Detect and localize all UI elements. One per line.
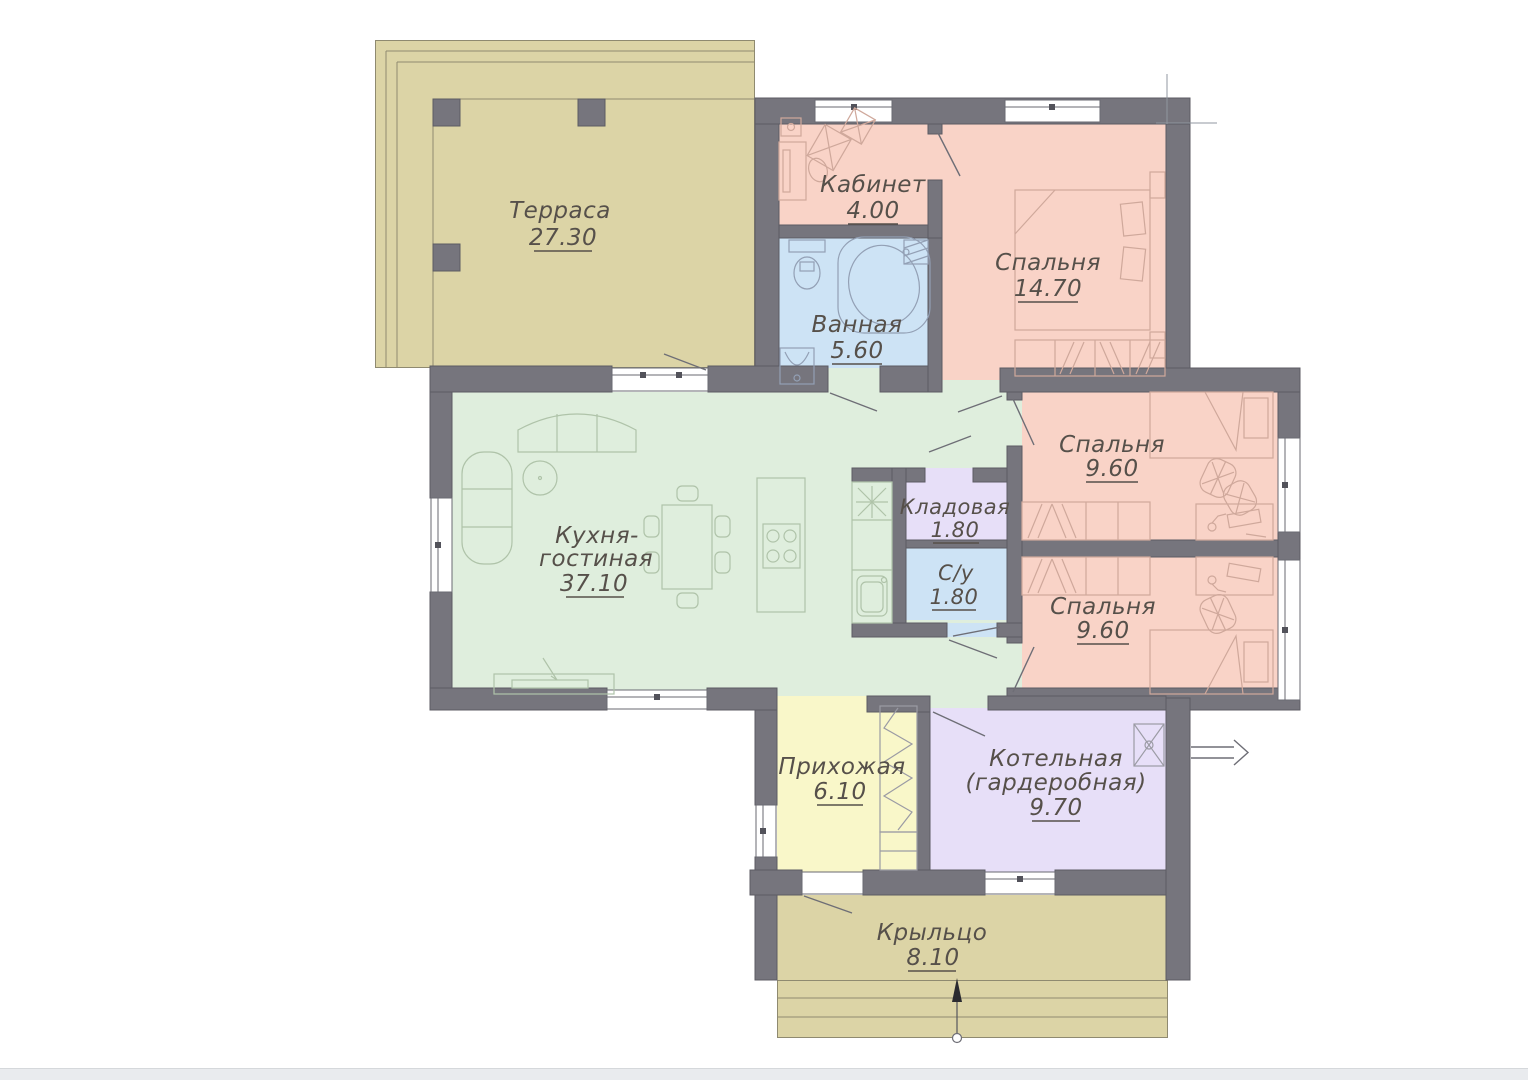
bathroom-door-opening (828, 368, 880, 392)
window-kitchen-bottom (607, 690, 707, 709)
wc-door-opening (947, 623, 997, 637)
bedroom-bottom-door-opening (1007, 643, 1022, 694)
office-label: Кабинет (820, 172, 926, 198)
window-kitchen-left (431, 498, 452, 592)
terrace-column (433, 244, 460, 271)
vent-arrow (1191, 740, 1248, 765)
hallway-label: Прихожая (778, 754, 905, 780)
window-office-top (815, 100, 892, 122)
bedroom-top-area: 9.60 (1085, 456, 1138, 482)
window-bedroom-top-right (1278, 438, 1300, 532)
porch-steps (777, 980, 1168, 1038)
bedroom-bottom-label: Спальня (1050, 594, 1156, 620)
office-area: 4.00 (846, 198, 899, 224)
porch-area: 8.10 (906, 945, 959, 971)
bathroom-area: 5.60 (830, 338, 883, 364)
kitchen-living-label-2: гостиная (539, 546, 653, 572)
hallway-area: 6.10 (813, 779, 866, 805)
terrace-door (612, 368, 708, 391)
bathroom-label: Ванная (812, 312, 903, 338)
terrace-area: 27.30 (529, 225, 597, 251)
wc-label: С/у (938, 561, 974, 585)
page-bottom-edge (0, 1068, 1528, 1080)
hood-symbol (856, 486, 888, 518)
bedroom-bottom-area: 9.60 (1076, 618, 1129, 644)
wc-area: 1.80 (930, 585, 979, 609)
pantry-area: 1.80 (931, 518, 980, 542)
window-boiler-bottom (985, 872, 1055, 894)
terrace-column (433, 99, 460, 126)
window-hallway-left (756, 805, 776, 857)
terrace-column (578, 99, 605, 126)
corridor-opening (942, 380, 1000, 392)
bedroom-top-label: Спальня (1059, 432, 1165, 458)
terrace-label: Терраса (509, 198, 611, 224)
bedroom-top-door-opening (1007, 398, 1022, 446)
boiler-room-label-2: (гардеробная) (965, 770, 1146, 796)
boiler-room-label-1: Котельная (989, 746, 1123, 772)
window-bedroom-bottom-right (1278, 560, 1300, 700)
kitchen-living-area: 37.10 (560, 571, 628, 597)
bedroom-main-label: Спальня (995, 250, 1101, 276)
office-door-opening (928, 134, 942, 180)
porch-label: Крыльцо (877, 920, 988, 946)
boiler-room-area: 9.70 (1029, 795, 1082, 821)
floor-plan: Терраса 27.30 Кабинет 4.00 Ванная 5.60 С… (0, 0, 1528, 1080)
pantry-door-opening (925, 468, 973, 482)
entrance-door-opening (802, 872, 863, 894)
window-bedroom-main-top (1005, 100, 1100, 122)
bedroom-main-area: 14.70 (1014, 276, 1082, 302)
pantry-label: Кладовая (900, 495, 1010, 519)
